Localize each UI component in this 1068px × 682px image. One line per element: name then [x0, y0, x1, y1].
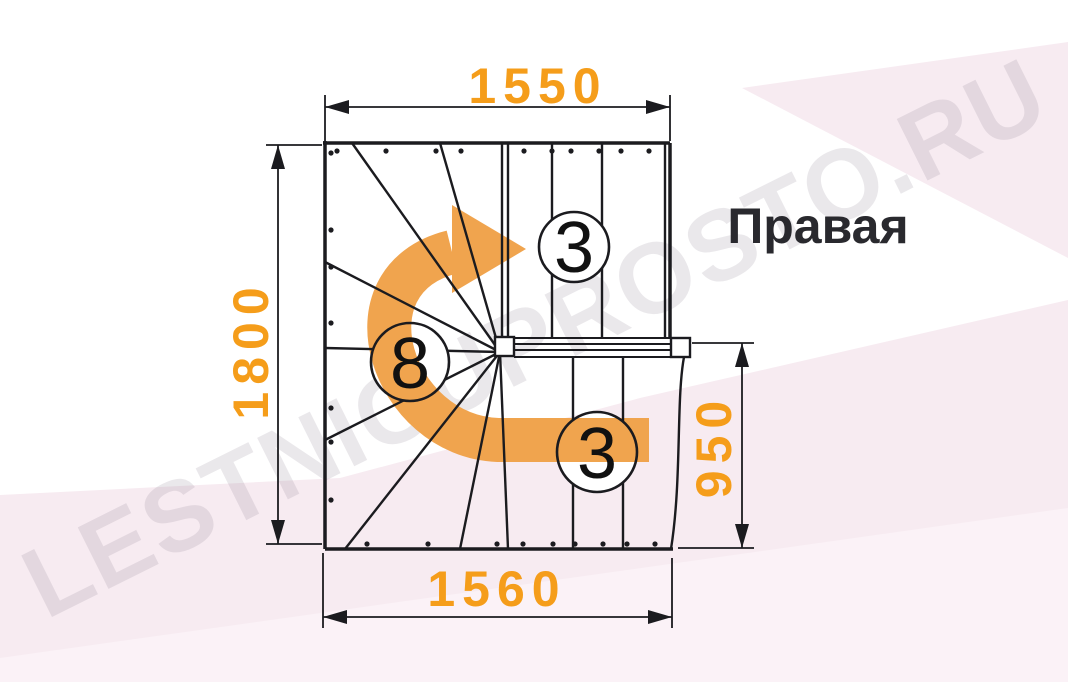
- dimension-top-arrow-left: [325, 100, 349, 114]
- dimension-right-arrow-top: [735, 343, 749, 367]
- staircase-plan-page: LESTNICUPROSTO.RU: [0, 0, 1068, 682]
- dimension-right-value: 950: [686, 394, 742, 498]
- upper-flight-step-count: 3: [554, 208, 594, 288]
- dimension-top-value: 1550: [468, 58, 607, 114]
- orientation-label: Правая: [727, 198, 908, 254]
- left-newel-post: [495, 337, 514, 356]
- right-newel-post: [671, 338, 690, 357]
- winder-step-count: 8: [390, 324, 430, 404]
- dimension-left-value: 1800: [223, 280, 279, 419]
- dimension-bottom-value: 1560: [427, 561, 566, 617]
- walk-direction-arrowhead: [452, 205, 526, 293]
- staircase-plan-drawing: LESTNICUPROSTO.RU: [0, 0, 1068, 682]
- dimension-left-arrow-top: [271, 145, 285, 169]
- dimension-top-arrow-right: [646, 100, 670, 114]
- lower-flight-step-count: 3: [577, 414, 617, 494]
